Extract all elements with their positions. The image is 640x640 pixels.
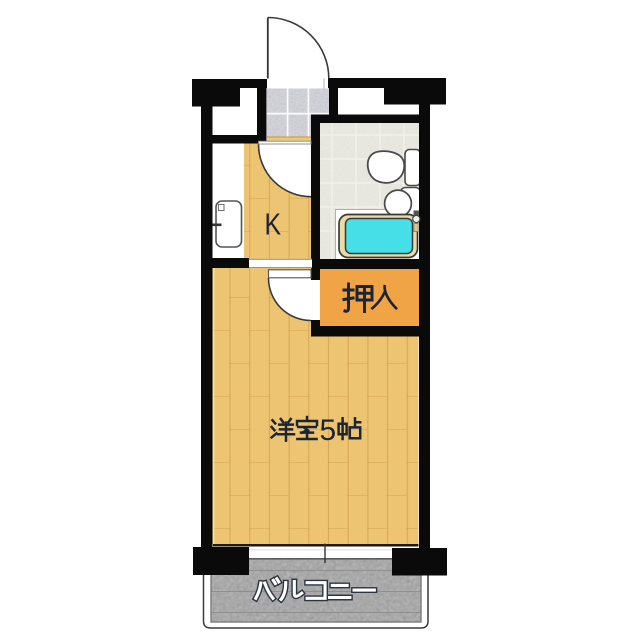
svg-text:K: K <box>265 207 282 241</box>
svg-text:5: 5 <box>320 414 337 447</box>
